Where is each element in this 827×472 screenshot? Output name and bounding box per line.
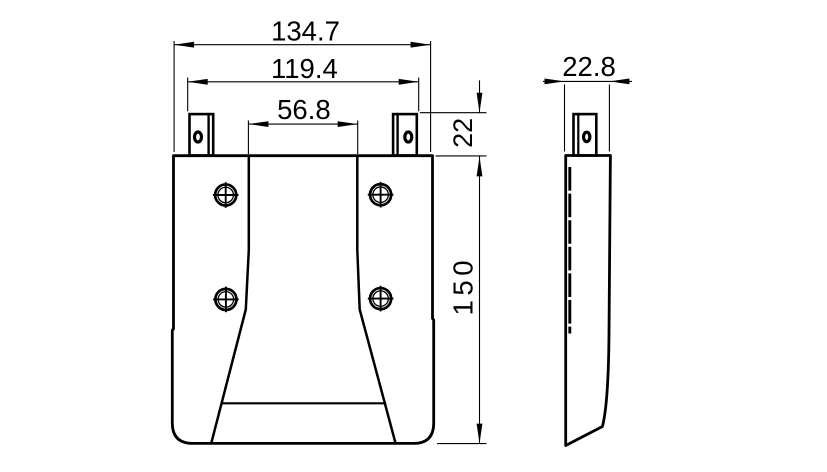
svg-text:134.7: 134.7 xyxy=(271,16,340,47)
svg-text:119.4: 119.4 xyxy=(271,53,338,84)
svg-text:56.8: 56.8 xyxy=(277,94,331,125)
svg-text:22: 22 xyxy=(448,118,478,148)
svg-text:150: 150 xyxy=(448,261,479,316)
svg-text:22.8: 22.8 xyxy=(562,51,616,82)
